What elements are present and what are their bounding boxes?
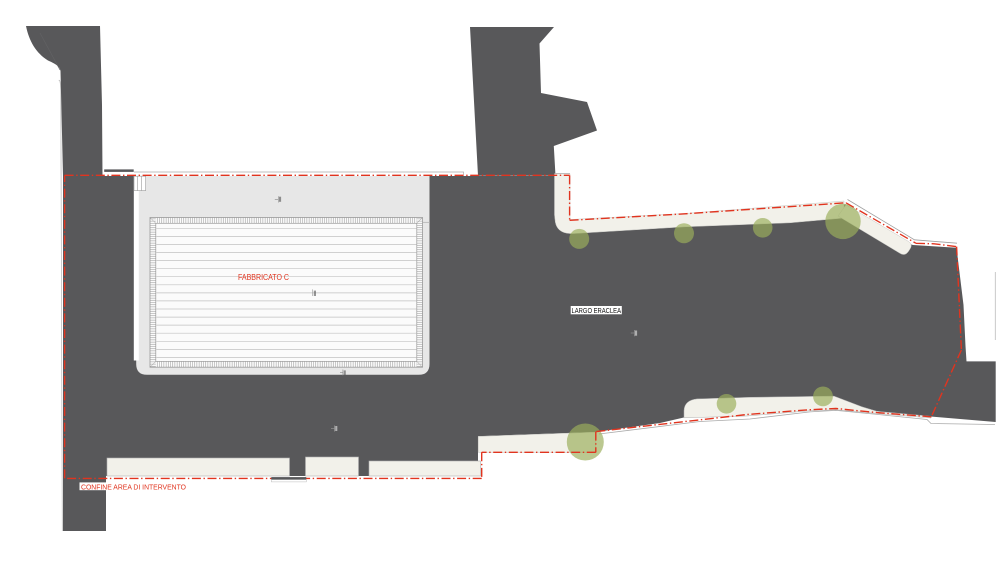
svg-text:CONFINE AREA DI INTERVENTO: CONFINE AREA DI INTERVENTO (81, 482, 186, 491)
svg-text:FABBRICATO C: FABBRICATO C (238, 272, 289, 282)
svg-text:LARGO ERACLEA: LARGO ERACLEA (572, 307, 622, 315)
